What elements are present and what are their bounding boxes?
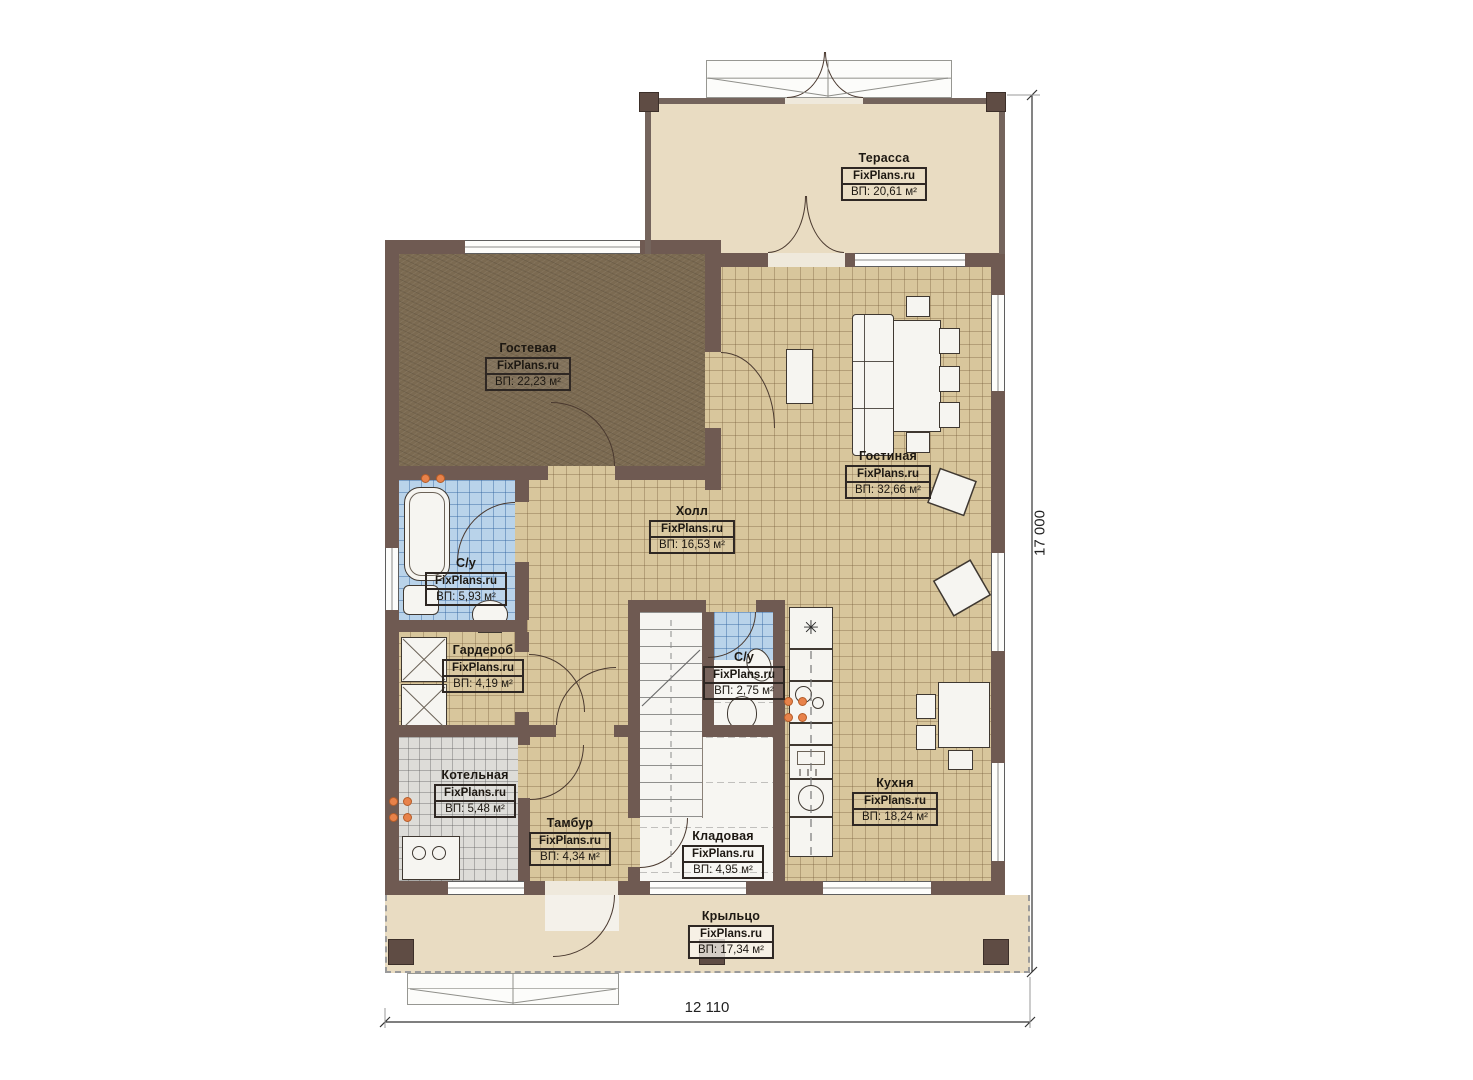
- terrace-wall: [863, 98, 1005, 104]
- room-area: ВП: 2,75 м²: [705, 684, 783, 698]
- wall: [397, 620, 527, 632]
- kitchen-sink: [789, 681, 833, 723]
- room-name: Котельная: [434, 768, 516, 782]
- kitchen-counter: [789, 649, 833, 681]
- wall: [397, 466, 548, 480]
- radiator-dot: [403, 797, 412, 806]
- window: [448, 881, 524, 895]
- chair: [939, 366, 960, 392]
- chair: [916, 725, 936, 750]
- room-label-bathroom: С/у FixPlans.ru ВП: 5,93 м²: [425, 556, 507, 606]
- terrace-wall: [645, 104, 651, 254]
- boiler-unit: [402, 836, 460, 880]
- room-area: ВП: 4,95 м²: [684, 863, 762, 877]
- watermark: FixPlans.ru: [487, 359, 569, 375]
- room-area: ВП: 5,48 м²: [436, 802, 514, 816]
- dining-table: [893, 320, 941, 432]
- staircase: [640, 612, 703, 818]
- room-label-guest: Гостевая FixPlans.ru ВП: 22,23 м²: [485, 341, 571, 391]
- room-label-kitchen: Кухня FixPlans.ru ВП: 18,24 м²: [852, 776, 938, 826]
- kitchen-counter: [789, 817, 833, 857]
- room-name: Кладовая: [682, 829, 764, 843]
- watermark: FixPlans.ru: [427, 574, 505, 590]
- kitchen-counter: [789, 723, 833, 745]
- wall: [705, 428, 721, 490]
- door-opening: [785, 98, 863, 104]
- chair: [948, 750, 973, 770]
- watermark: FixPlans.ru: [690, 927, 772, 943]
- watermark: FixPlans.ru: [444, 661, 522, 677]
- room-label-wardrobe: Гардероб FixPlans.ru ВП: 4,19 м²: [442, 643, 524, 693]
- door-opening: [768, 253, 845, 267]
- window: [385, 548, 399, 610]
- window: [991, 295, 1005, 391]
- room-label-hall: Холл FixPlans.ru ВП: 16,53 м²: [649, 504, 735, 554]
- radiator-dot: [798, 713, 807, 722]
- room-name: С/у: [425, 556, 507, 570]
- watermark: FixPlans.ru: [684, 847, 762, 863]
- chair: [906, 296, 930, 317]
- room-area: ВП: 4,34 м²: [531, 850, 609, 864]
- freezer-icon: ✳: [790, 608, 832, 648]
- wall: [518, 737, 530, 745]
- room-area: ВП: 16,53 м²: [651, 538, 733, 552]
- chair: [939, 402, 960, 428]
- watermark: FixPlans.ru: [847, 467, 929, 483]
- wall: [721, 253, 768, 267]
- floor-plan: ✳: [0, 0, 1473, 1080]
- room-area: ВП: 17,34 м²: [690, 943, 772, 957]
- wall: [705, 254, 721, 352]
- chair: [939, 328, 960, 354]
- window: [823, 881, 931, 895]
- room-label-wc: С/у FixPlans.ru ВП: 2,75 м²: [703, 650, 785, 700]
- kitchen-table: [938, 682, 990, 748]
- room-label-boiler: Котельная FixPlans.ru ВП: 5,48 м²: [434, 768, 516, 818]
- closet: [401, 637, 447, 682]
- room-name: Гостевая: [485, 341, 571, 355]
- room-name: Гардероб: [442, 643, 524, 657]
- window: [650, 881, 746, 895]
- window: [465, 240, 640, 254]
- room-label-storage: Кладовая FixPlans.ru ВП: 4,95 м²: [682, 829, 764, 879]
- watermark: FixPlans.ru: [843, 169, 925, 185]
- room-area: ВП: 4,19 м²: [444, 677, 522, 691]
- radiator-dot: [389, 813, 398, 822]
- door-opening: [545, 881, 618, 895]
- wall: [615, 466, 721, 480]
- radiator-dot: [798, 697, 807, 706]
- sofa: [852, 314, 894, 456]
- room-name: Крыльцо: [688, 909, 774, 923]
- oven-door: [797, 751, 825, 765]
- terrace-wall: [645, 98, 785, 104]
- watermark: FixPlans.ru: [854, 794, 936, 810]
- watermark: FixPlans.ru: [705, 668, 783, 684]
- room-label-living: Гостиная FixPlans.ru ВП: 32,66 м²: [845, 449, 931, 499]
- porch-post: [388, 939, 414, 965]
- tv-stand: [786, 349, 813, 404]
- porch-post: [983, 939, 1009, 965]
- radiator-dot: [784, 713, 793, 722]
- room-name: С/у: [703, 650, 785, 664]
- terrace-post: [986, 92, 1006, 112]
- room-area: ВП: 22,23 м²: [487, 375, 569, 389]
- boiler-dial: [432, 846, 446, 860]
- radiator-dot: [421, 474, 430, 483]
- watermark: FixPlans.ru: [651, 522, 733, 538]
- wall: [397, 725, 530, 737]
- room-name: Гостиная: [845, 449, 931, 463]
- room-label-vestibule: Тамбур FixPlans.ru ВП: 4,34 м²: [529, 816, 611, 866]
- wall: [515, 562, 529, 620]
- wall: [628, 600, 706, 612]
- wall: [628, 867, 640, 883]
- room-label-porch: Крыльцо FixPlans.ru ВП: 17,34 м²: [688, 909, 774, 959]
- radiator-dot: [403, 813, 412, 822]
- dimension-right: 17 000: [1032, 510, 1049, 556]
- radiator-dot: [436, 474, 445, 483]
- closet: [401, 684, 447, 730]
- wall: [773, 600, 785, 883]
- room-name: Терасса: [841, 151, 927, 165]
- window: [991, 763, 1005, 861]
- window: [855, 253, 965, 267]
- radiator-dot: [784, 697, 793, 706]
- wall: [628, 612, 640, 818]
- watermark: FixPlans.ru: [436, 786, 514, 802]
- sink-bowl: [812, 697, 824, 709]
- room-area: ВП: 32,66 м²: [847, 483, 929, 497]
- wall: [515, 480, 529, 502]
- room-label-terrace: Терасса FixPlans.ru ВП: 20,61 м²: [841, 151, 927, 201]
- room-name: Холл: [649, 504, 735, 518]
- room-name: Кухня: [852, 776, 938, 790]
- watermark: FixPlans.ru: [531, 834, 609, 850]
- wall: [530, 725, 556, 737]
- radiator-dot: [389, 797, 398, 806]
- room-area: ВП: 20,61 м²: [843, 185, 925, 199]
- window: [991, 553, 1005, 651]
- dimension-bottom: 12 110: [685, 999, 730, 1016]
- terrace-wall: [999, 104, 1005, 254]
- fridge: ✳: [789, 607, 833, 649]
- room-name: Тамбур: [529, 816, 611, 830]
- porch-steps: [407, 973, 619, 1005]
- boiler-dial: [412, 846, 426, 860]
- terrace-post: [639, 92, 659, 112]
- room-area: ВП: 5,93 м²: [427, 590, 505, 604]
- washer-drum: [798, 785, 824, 811]
- room-area: ВП: 18,24 м²: [854, 810, 936, 824]
- chair: [916, 694, 936, 719]
